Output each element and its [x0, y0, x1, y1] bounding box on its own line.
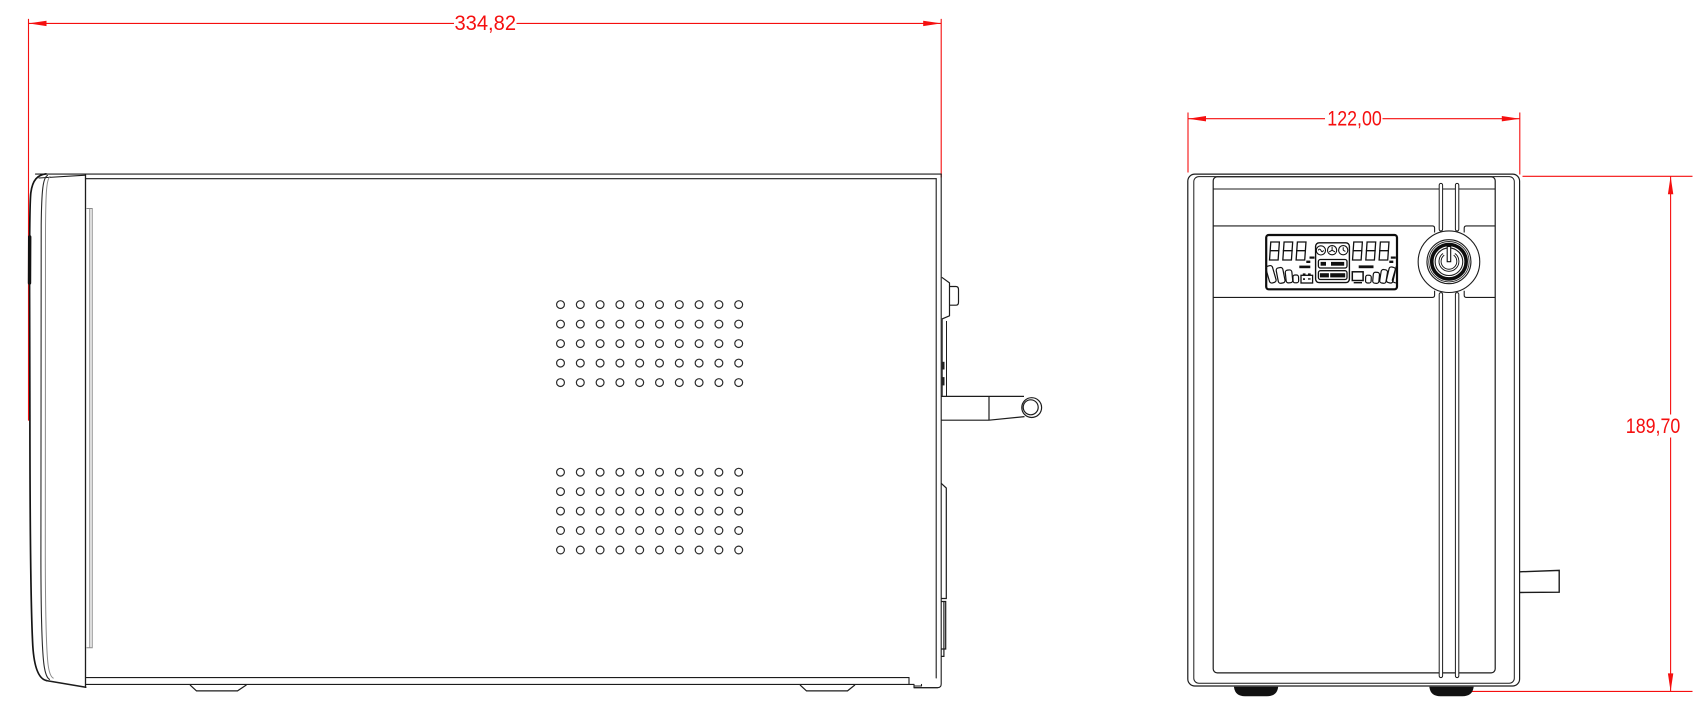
svg-text:189,70: 189,70 — [1626, 415, 1681, 438]
svg-text:334,82: 334,82 — [455, 12, 517, 35]
svg-text:122,00: 122,00 — [1327, 107, 1382, 130]
